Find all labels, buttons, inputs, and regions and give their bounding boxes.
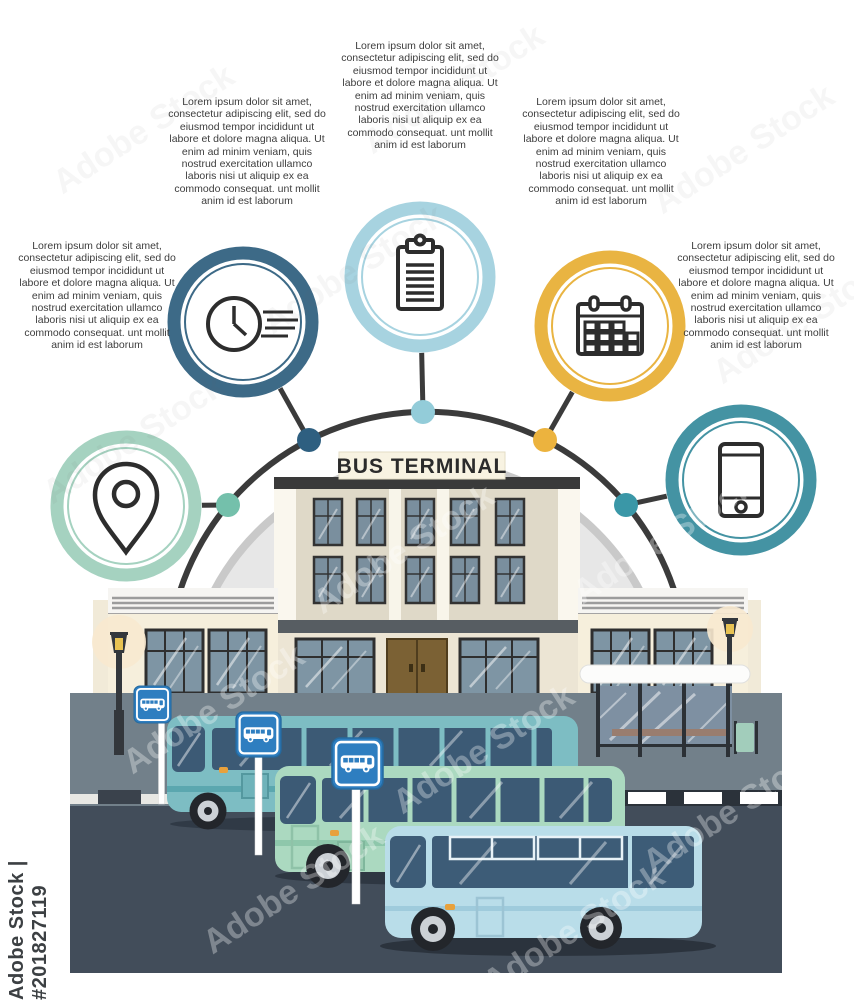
entrance-awning — [270, 620, 584, 633]
text-block-top-center: Lorem ipsum dolor sit amet, consectetur … — [340, 40, 500, 152]
curb-step — [98, 790, 141, 804]
clipboard-node — [344, 201, 496, 353]
bus-terminal-sign-label: BUS TERMINAL — [337, 455, 508, 478]
bus-light-blue — [380, 826, 716, 956]
shelter-bench — [612, 729, 730, 736]
arc-dot-clock — [297, 428, 321, 452]
bus-marker-light — [219, 767, 228, 773]
bus-marker-light — [445, 904, 455, 910]
shelter-roof — [580, 665, 750, 683]
terminal-building: BUS TERMINAL — [270, 452, 584, 697]
text-block-left: Lorem ipsum dolor sit amet, consectetur … — [17, 240, 177, 352]
arc-dot-calendar — [533, 428, 557, 452]
smartphone-node — [665, 404, 817, 556]
bus-marker-light — [330, 830, 339, 836]
calendar-node — [534, 250, 686, 402]
text-block-upper-left: Lorem ipsum dolor sit amet, consectetur … — [168, 96, 326, 208]
bus-shelter — [580, 665, 758, 757]
location-pin-node — [50, 430, 202, 582]
arc-dot-pin — [216, 493, 240, 517]
clock-node — [167, 246, 319, 398]
trash-bin — [736, 723, 754, 752]
arc-dot-phone — [614, 493, 638, 517]
arc-dot-clipboard — [411, 400, 435, 424]
adobe-stock-id-watermark: Adobe Stock | #201827119 — [6, 748, 52, 1000]
stock-illustration-bus-terminal-infographic: BUS TERMINAL — [0, 0, 854, 1000]
text-block-upper-right: Lorem ipsum dolor sit amet, consectetur … — [522, 96, 680, 208]
text-block-right: Lorem ipsum dolor sit amet, consectetur … — [676, 240, 836, 352]
